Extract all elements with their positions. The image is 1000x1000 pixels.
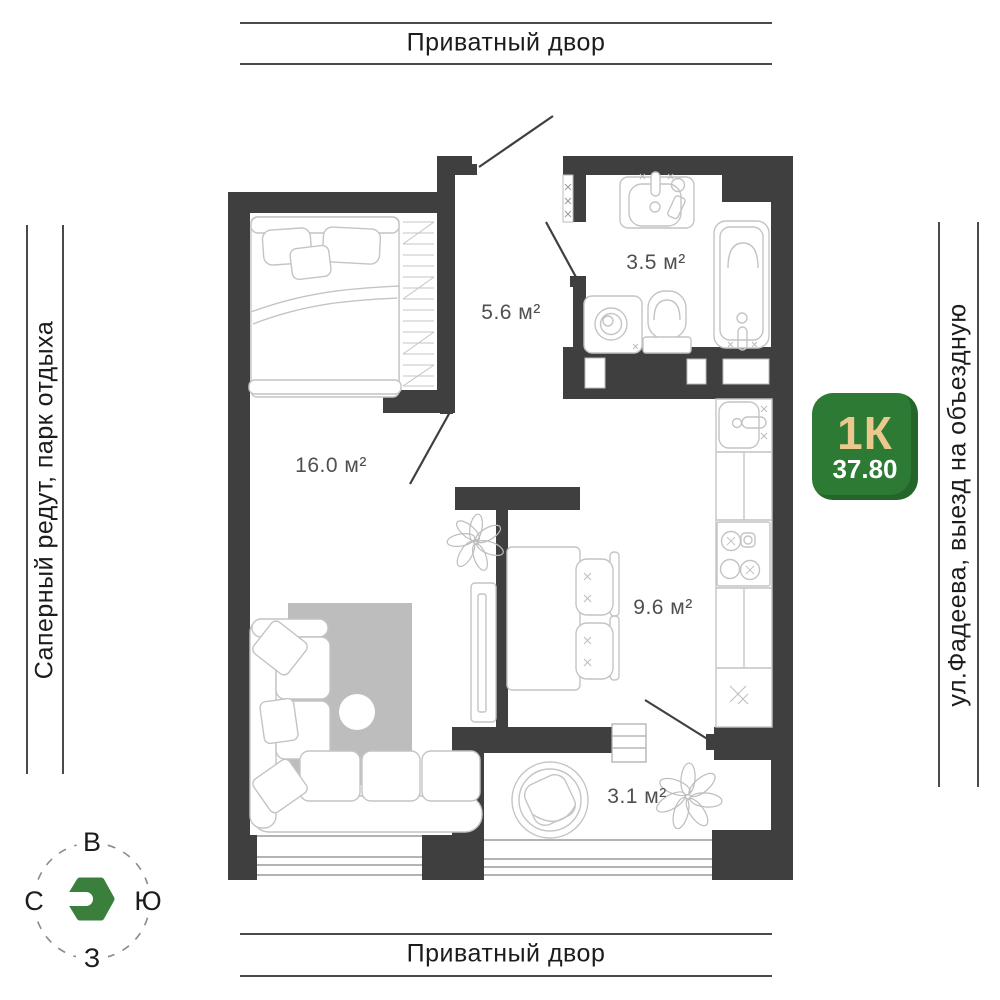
compass: В Ю З С: [0, 0, 1000, 1000]
compass-south-label: Ю: [134, 886, 161, 916]
compass-logo-icon: [62, 881, 111, 917]
floor-plan-page: Приватный двор Приватный двор Саперный р…: [0, 0, 1000, 1000]
compass-north-label: С: [24, 886, 44, 916]
compass-west-label: З: [84, 943, 100, 973]
compass-east-label: В: [83, 827, 101, 857]
